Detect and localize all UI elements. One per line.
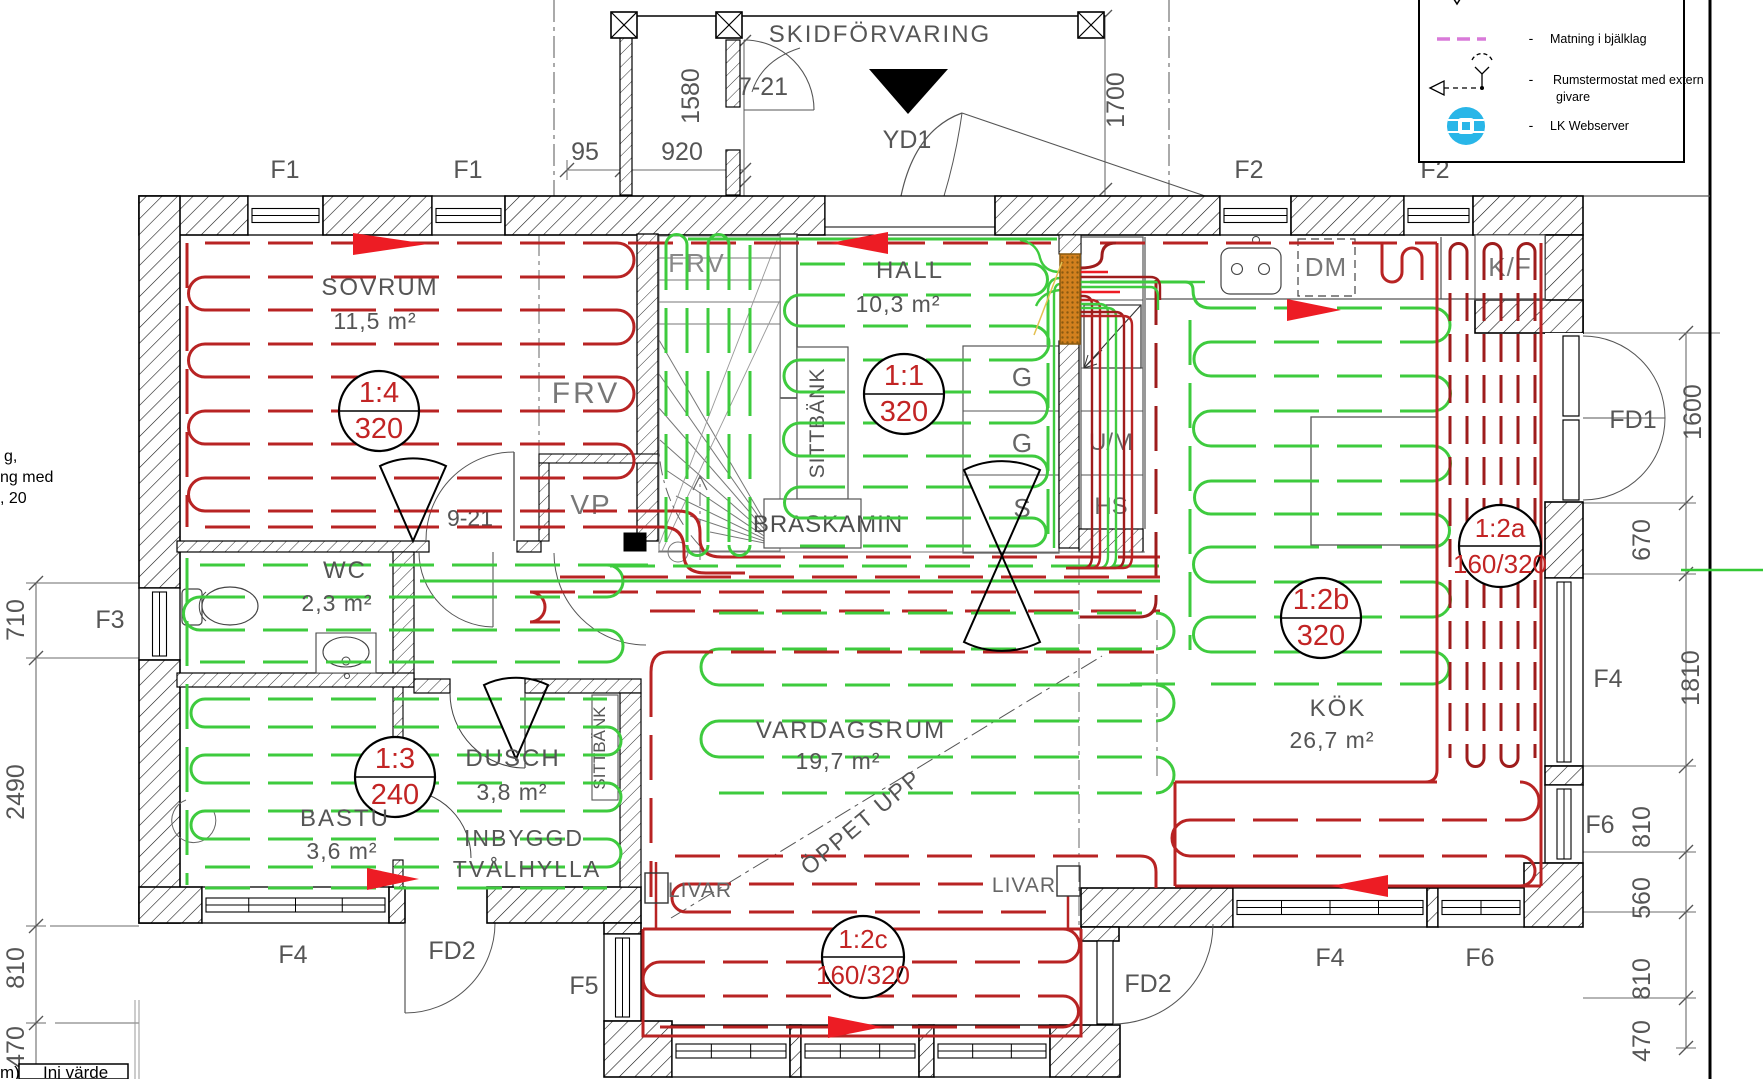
svg-text:320: 320 — [880, 396, 928, 428]
svg-text:F6: F6 — [1465, 944, 1494, 972]
svg-text:470: 470 — [2, 1026, 30, 1068]
svg-text:SITTBÄNK: SITTBÄNK — [590, 706, 609, 790]
svg-text:1:2c: 1:2c — [838, 924, 887, 954]
svg-text:G: G — [1012, 362, 1032, 392]
svg-text:HALL: HALL — [876, 257, 944, 284]
svg-text:1:4: 1:4 — [359, 377, 399, 409]
svg-text:160/320: 160/320 — [1453, 549, 1547, 579]
svg-text:7-21: 7-21 — [738, 73, 788, 101]
svg-text:810: 810 — [1628, 806, 1656, 848]
svg-text:2490: 2490 — [2, 764, 30, 820]
svg-text:1:2a: 1:2a — [1475, 513, 1526, 543]
svg-text:LIVAR: LIVAR — [668, 879, 732, 902]
svg-text:26,7 m²: 26,7 m² — [1290, 727, 1375, 753]
svg-text:FD2: FD2 — [1124, 970, 1171, 998]
svg-text:320: 320 — [1297, 620, 1345, 652]
svg-text:DUSCH: DUSCH — [465, 745, 560, 772]
svg-text:Matning i bjälklag: Matning i bjälklag — [1550, 32, 1647, 46]
svg-text:1:3: 1:3 — [375, 743, 415, 775]
svg-text:U/M: U/M — [1089, 429, 1133, 456]
svg-text:1810: 1810 — [1677, 650, 1705, 706]
svg-text:, 20: , 20 — [0, 490, 27, 507]
svg-text:F4: F4 — [278, 941, 307, 969]
svg-text:g,: g, — [4, 448, 17, 465]
svg-text:DM: DM — [1305, 252, 1347, 282]
svg-text:1700: 1700 — [1102, 72, 1130, 128]
svg-text:F5: F5 — [569, 972, 598, 1000]
svg-text:BRASKAMIN: BRASKAMIN — [753, 511, 903, 538]
svg-text:F3: F3 — [95, 606, 124, 634]
svg-text:FRV: FRV — [668, 248, 726, 278]
svg-text:WC: WC — [323, 557, 367, 584]
svg-text:3,8 m²: 3,8 m² — [476, 779, 547, 805]
svg-text:F1: F1 — [270, 156, 299, 184]
svg-text:-: - — [1529, 30, 1534, 46]
svg-text:VP: VP — [570, 489, 611, 520]
svg-text:3,6 m²: 3,6 m² — [306, 838, 377, 864]
svg-text:560: 560 — [1628, 877, 1656, 919]
svg-text:F6: F6 — [1585, 811, 1614, 839]
svg-text:YD1: YD1 — [883, 126, 932, 154]
svg-text:SKIDFÖRVARING: SKIDFÖRVARING — [769, 21, 991, 48]
svg-text:95: 95 — [571, 138, 599, 166]
svg-text:-: - — [1529, 71, 1534, 87]
svg-text:F1: F1 — [453, 156, 482, 184]
svg-text:2,3 m²: 2,3 m² — [301, 590, 372, 616]
svg-text:Rumstermostat med extern: Rumstermostat med extern — [1553, 73, 1704, 87]
svg-text:810: 810 — [1628, 958, 1656, 1000]
svg-text:INBYGGD: INBYGGD — [464, 825, 584, 851]
svg-text:10,3 m²: 10,3 m² — [856, 291, 941, 317]
svg-text:TVÅLHYLLA: TVÅLHYLLA — [453, 855, 601, 882]
svg-text:670: 670 — [1628, 519, 1656, 561]
svg-text:LK Webserver: LK Webserver — [1550, 119, 1629, 133]
svg-text:11,5 m²: 11,5 m² — [333, 308, 416, 334]
svg-text:FD2: FD2 — [428, 937, 475, 965]
svg-text:1:2b: 1:2b — [1293, 584, 1349, 616]
svg-text:Inj värde: Inj värde — [43, 1063, 108, 1079]
svg-text:1:1: 1:1 — [884, 360, 924, 392]
svg-text:810: 810 — [2, 947, 30, 989]
svg-text:-: - — [1529, 117, 1534, 133]
svg-text:F4: F4 — [1593, 665, 1622, 693]
svg-text:710: 710 — [2, 599, 30, 641]
svg-text:VARDAGSRUM: VARDAGSRUM — [756, 717, 946, 744]
svg-text:19,7 m²: 19,7 m² — [796, 748, 881, 774]
svg-text:KÖK: KÖK — [1310, 695, 1367, 722]
svg-text:BASTU: BASTU — [300, 805, 390, 832]
svg-text:m): m) — [0, 1063, 20, 1079]
svg-text:470: 470 — [1628, 1020, 1656, 1062]
svg-text:LIVAR: LIVAR — [992, 874, 1056, 897]
svg-text:160/320: 160/320 — [816, 960, 910, 990]
svg-text:320: 320 — [355, 413, 403, 445]
svg-text:1600: 1600 — [1679, 384, 1707, 440]
svg-text:K/F: K/F — [1488, 252, 1531, 282]
svg-text:givare: givare — [1556, 90, 1590, 104]
svg-text:FRV: FRV — [552, 377, 620, 410]
svg-text:SOVRUM: SOVRUM — [321, 274, 438, 301]
svg-text:F4: F4 — [1315, 944, 1344, 972]
svg-text:ng med: ng med — [0, 469, 53, 486]
svg-text:920: 920 — [661, 138, 703, 166]
svg-text:F2: F2 — [1234, 156, 1263, 184]
svg-text:G: G — [1012, 428, 1032, 458]
svg-text:1580: 1580 — [677, 68, 705, 124]
svg-text:FD1: FD1 — [1609, 406, 1656, 434]
